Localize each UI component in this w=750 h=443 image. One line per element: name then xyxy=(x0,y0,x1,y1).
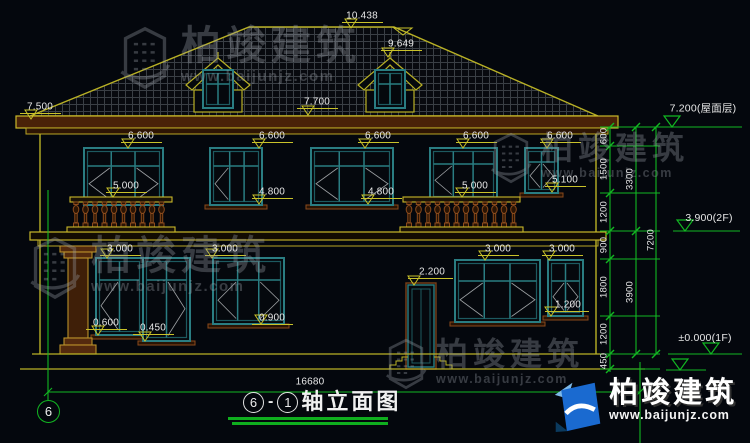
baluster xyxy=(435,202,441,227)
window xyxy=(306,148,398,209)
window xyxy=(205,148,267,209)
dimension-label: 3.000 xyxy=(549,244,575,255)
title-axis-bubble-end: 1 xyxy=(277,392,298,413)
chain-dimension-label: 1500 xyxy=(599,158,610,180)
dimension-label: 5.000 xyxy=(462,181,488,192)
baluster xyxy=(425,202,431,227)
title-underline-bottom xyxy=(232,422,388,425)
dimension-label: 0.600 xyxy=(93,318,119,329)
dimension-label: 6.600 xyxy=(259,131,285,142)
title-axis-bubble-start: 6 xyxy=(243,392,264,413)
brand-logo-site: www.baijunjz.com xyxy=(609,408,737,422)
baluster xyxy=(102,202,108,227)
dimension-label: 6.600 xyxy=(463,131,489,142)
dimension-label: 6.600 xyxy=(547,131,573,142)
balconies xyxy=(67,197,523,232)
chain-dimension-label: 7200 xyxy=(646,229,657,251)
chain-dimension-label: 3300 xyxy=(625,168,636,190)
dimension-label: 4.800 xyxy=(259,187,285,198)
dimension-label: 3.000 xyxy=(485,244,511,255)
baluster xyxy=(416,202,422,227)
window xyxy=(375,70,405,108)
dimension-label: 6.600 xyxy=(128,131,154,142)
dimension-label: 3.000 xyxy=(212,244,238,255)
baluster xyxy=(140,202,146,227)
dimension-label: 2.200 xyxy=(419,267,445,278)
axis-grid-bubble: 6 xyxy=(37,400,60,423)
elevation-marker-label: ±0.000(1F) xyxy=(678,332,731,344)
brand-logo: 柏竣建筑 www.baijunjz.com xyxy=(552,378,737,434)
baluster xyxy=(92,202,98,227)
title-dash: - xyxy=(268,393,273,411)
ground-lines xyxy=(20,354,645,369)
chain-dimension-label: 1200 xyxy=(599,201,610,223)
chain-dimension-label: 450 xyxy=(599,353,610,369)
dimension-label: 5.100 xyxy=(552,175,578,186)
window xyxy=(84,148,163,205)
pilaster-column xyxy=(60,246,96,354)
chain-dimension-label: 900 xyxy=(599,237,610,253)
brand-logo-mark xyxy=(552,378,604,434)
elevation-drawing-canvas: 柏竣建筑www.baijunjz.com柏竣建筑www.baijunjz.com… xyxy=(0,0,750,443)
elevation-marker-label: 3.900(2F) xyxy=(685,212,732,224)
drawing-title: 6 - 1 轴立面图 xyxy=(243,391,401,413)
entry-door xyxy=(406,283,436,369)
title-text: 轴立面图 xyxy=(301,391,401,413)
dimension-label: 0.450 xyxy=(140,323,166,334)
dimension-label: 9.649 xyxy=(388,39,414,50)
dimension-label: 6.600 xyxy=(365,131,391,142)
baluster xyxy=(149,202,155,227)
dimension-label: 7.700 xyxy=(304,97,330,108)
dimension-label: 0.900 xyxy=(259,313,285,324)
baluster xyxy=(473,202,479,227)
dimension-label: 1.200 xyxy=(555,300,581,311)
baluster xyxy=(482,202,488,227)
baluster xyxy=(511,202,517,227)
baluster xyxy=(501,202,507,227)
baluster xyxy=(121,202,127,227)
overall-dimension-label: 16680 xyxy=(296,377,325,388)
dimension-label: 3.000 xyxy=(107,244,133,255)
baluster xyxy=(463,202,469,227)
dimension-label: 5.000 xyxy=(113,181,139,192)
chain-dimension-label: 600 xyxy=(599,128,610,144)
title-underline-top xyxy=(228,417,388,420)
baluster xyxy=(73,202,79,227)
chain-dimension-label: 1200 xyxy=(599,323,610,345)
baluster xyxy=(492,202,498,227)
baluster xyxy=(406,202,412,227)
baluster xyxy=(111,202,117,227)
window xyxy=(543,260,588,320)
baluster xyxy=(159,202,165,227)
window xyxy=(450,260,545,326)
cornice-band xyxy=(16,116,618,134)
window xyxy=(203,70,233,108)
chain-dimension-label: 3900 xyxy=(625,281,636,303)
baluster xyxy=(444,202,450,227)
chain-dimension-label: 1800 xyxy=(599,276,610,298)
dimension-label: 4.800 xyxy=(368,187,394,198)
balcony-balustrade xyxy=(400,197,523,232)
baluster xyxy=(83,202,89,227)
brand-logo-name: 柏竣建筑 xyxy=(609,378,737,408)
balcony-balustrade xyxy=(67,197,175,232)
dimension-label: 7.500 xyxy=(27,102,53,113)
dimension-label: 10.438 xyxy=(346,11,378,22)
baluster xyxy=(454,202,460,227)
elevation-marker-label: 7.200(屋面层) xyxy=(670,101,737,116)
baluster xyxy=(130,202,136,227)
window xyxy=(520,148,563,197)
